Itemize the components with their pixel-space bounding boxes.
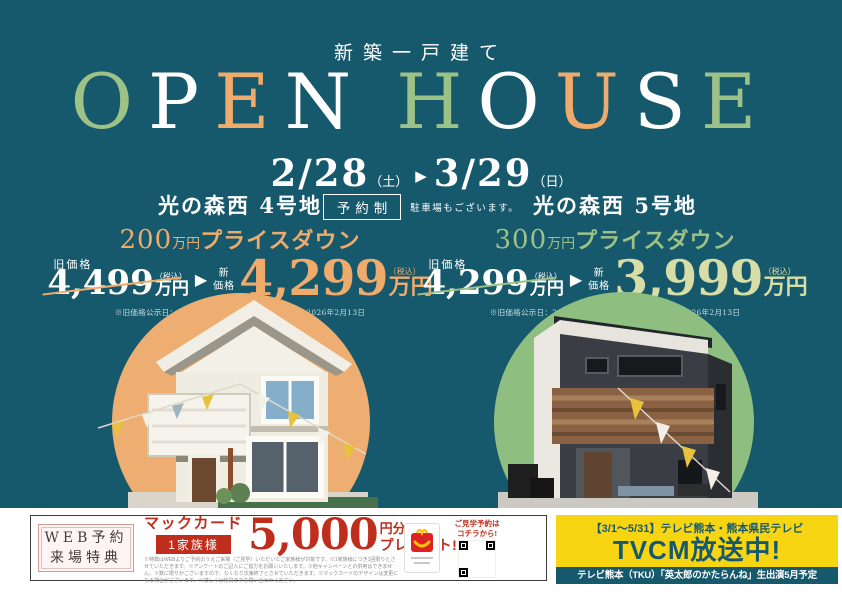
tvcm-yellow-box: 【3/1～5/31】テレビ熊本・熊本県民テレビ TVCM放送中! — [556, 515, 838, 567]
qr-label-line2: コチラから! — [457, 529, 497, 538]
tvcm-banner: 【3/1～5/31】テレビ熊本・熊本県民テレビ TVCM放送中! テレビ熊本（T… — [556, 515, 838, 584]
end-date-day: （日） — [533, 175, 572, 190]
web-badge-line1: WEB予約 — [45, 528, 128, 548]
qr-code — [459, 541, 495, 577]
title-letter: H — [396, 57, 477, 146]
title-letter: P — [148, 57, 214, 146]
new-price-label: 新 価格 — [213, 267, 235, 293]
house-photo-lot4 — [98, 296, 398, 508]
web-reservation-badge: WEB予約 来場特典 — [38, 524, 134, 572]
price-arrow-icon: ▶ — [570, 270, 582, 289]
start-date-day: （土） — [369, 175, 408, 190]
house-photo-lot5 — [468, 292, 778, 508]
old-price: 旧価格 4,499 （税込）万円 — [47, 256, 188, 298]
property-name: 光の森西 4号地 — [30, 190, 450, 220]
title-letter: U — [555, 57, 634, 146]
property-name: 光の森西 5号地 — [405, 190, 825, 220]
tvcm-title: TVCM放送中! — [556, 536, 838, 565]
pricedown-unit: 万円 — [547, 236, 575, 252]
new-price-value: 4,299 — [239, 259, 387, 298]
title-letter: O — [477, 57, 554, 146]
new-label-top: 新 — [588, 267, 610, 280]
tvcm-schedule: 【3/1～5/31】テレビ熊本・熊本県民テレビ — [556, 520, 838, 536]
gift-brand: マックカード — [144, 512, 243, 533]
qr-block: ご見学予約は コチラから! — [448, 519, 506, 577]
pricedown-amount: 300 — [495, 225, 548, 255]
new-price-label: 新 価格 — [588, 267, 610, 293]
qr-finder-pattern — [486, 541, 495, 550]
qr-finder-pattern — [459, 541, 468, 550]
web-gift-promo-box: WEB予約 来場特典 マックカード 1家族様 5,000 円分 プレゼント! ※… — [30, 515, 547, 581]
title-letter: O — [71, 57, 148, 146]
gift-amount: 5,000 — [248, 518, 378, 553]
main-section: 新築一戸建て OPENHOUSE 2/28（土）▶3/29（日） 予約制 駐車場… — [0, 0, 842, 508]
pricedown-amount: 200 — [120, 225, 173, 255]
happy-meal-card-icon — [404, 523, 440, 573]
new-label-bottom: 価格 — [588, 280, 610, 293]
web-badge-line2: 来場特典 — [50, 548, 122, 568]
open-house-title: OPENHOUSE — [0, 64, 842, 140]
price-arrow-icon: ▶ — [195, 270, 207, 289]
start-date: 2/28 — [270, 151, 369, 195]
title-letter: S — [634, 57, 701, 146]
event-date-range: 2/28（土）▶3/29（日） — [0, 151, 842, 195]
family-badge: 1家族様 — [156, 535, 231, 554]
tvcm-program-note: テレビ熊本（TKU）「英太郎のかたらんね」生出演5月予定 — [556, 567, 838, 584]
title-letter: E — [214, 57, 284, 146]
price-row: 旧価格 4,499 （税込）万円 ▶ 新 価格 4,299 （税込）万円 — [30, 256, 450, 298]
new-label-top: 新 — [213, 267, 235, 280]
card-text-line — [411, 557, 433, 559]
footer-band: WEB予約 来場特典 マックカード 1家族様 5,000 円分 プレゼント! ※… — [0, 508, 842, 595]
mcdonalds-box-icon — [409, 528, 435, 554]
new-price: 4,299 （税込）万円 — [239, 259, 432, 298]
open-house-flyer: 新築一戸建て OPENHOUSE 2/28（土）▶3/29（日） 予約制 駐車場… — [0, 0, 842, 595]
card-text-line — [414, 562, 430, 564]
gift-offer: マックカード 1家族様 5,000 円分 プレゼント! ※特典はWEBよりご予約… — [144, 512, 400, 585]
end-date: 3/29 — [434, 151, 533, 195]
qr-label-line1: ご見学予約は — [455, 519, 500, 528]
new-label-bottom: 価格 — [213, 280, 235, 293]
pricedown-unit: 万円 — [172, 236, 200, 252]
date-arrow-icon: ▶ — [415, 167, 427, 185]
title-letter: N — [285, 57, 367, 146]
gift-fine-print: ※特典はWEBよりご予約のうえご来場（ご見学）いただいたご家族様が対象です。※1… — [144, 557, 400, 585]
qr-finder-pattern — [459, 568, 468, 577]
title-letter: E — [701, 57, 771, 146]
